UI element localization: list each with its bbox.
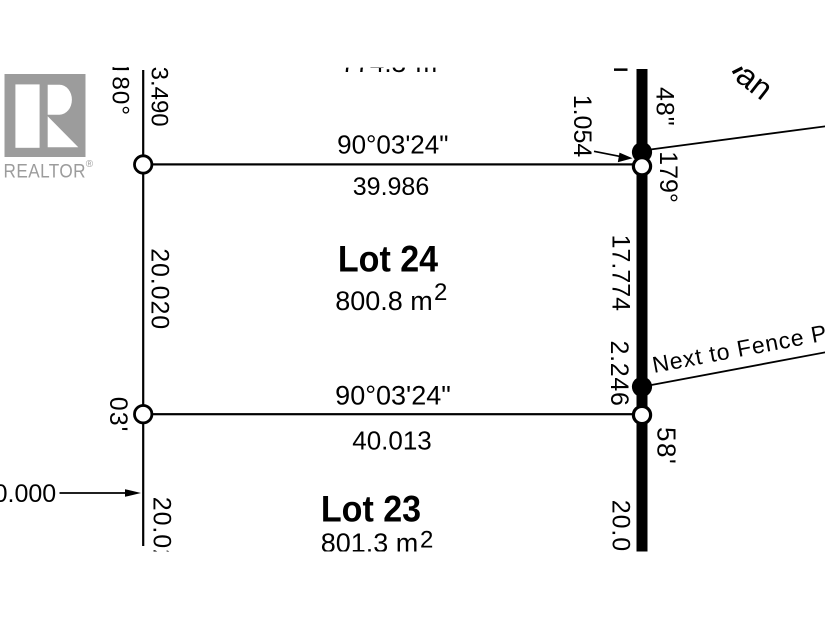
svg-text:90°03'24": 90°03'24" (335, 381, 451, 411)
svg-text:3.490: 3.490 (146, 67, 173, 127)
svg-text:2.246: 2.246 (605, 341, 633, 407)
svg-text:90°03'24": 90°03'24" (337, 130, 448, 160)
svg-text:2: 2 (420, 527, 433, 554)
svg-text:03': 03' (104, 397, 132, 433)
svg-text:Lot 24: Lot 24 (338, 238, 438, 280)
svg-text:180°: 180° (107, 62, 134, 116)
svg-text:40.013: 40.013 (352, 426, 432, 456)
svg-text:48": 48" (651, 87, 679, 127)
svg-text:17.774: 17.774 (607, 235, 635, 312)
svg-text:REALTOR: REALTOR (4, 159, 87, 181)
svg-text:1.054: 1.054 (568, 95, 596, 158)
svg-text:20.020: 20.020 (146, 248, 174, 330)
svg-text:2: 2 (434, 279, 447, 306)
svg-text:39.986: 39.986 (353, 173, 429, 201)
svg-text:Lot 23: Lot 23 (321, 488, 421, 530)
svg-text:20.000: 20.000 (0, 480, 56, 508)
svg-text:®: ® (86, 159, 94, 170)
svg-text:800.8 m: 800.8 m (335, 286, 433, 316)
svg-text:179°: 179° (654, 151, 682, 203)
svg-text:58': 58' (652, 427, 682, 465)
